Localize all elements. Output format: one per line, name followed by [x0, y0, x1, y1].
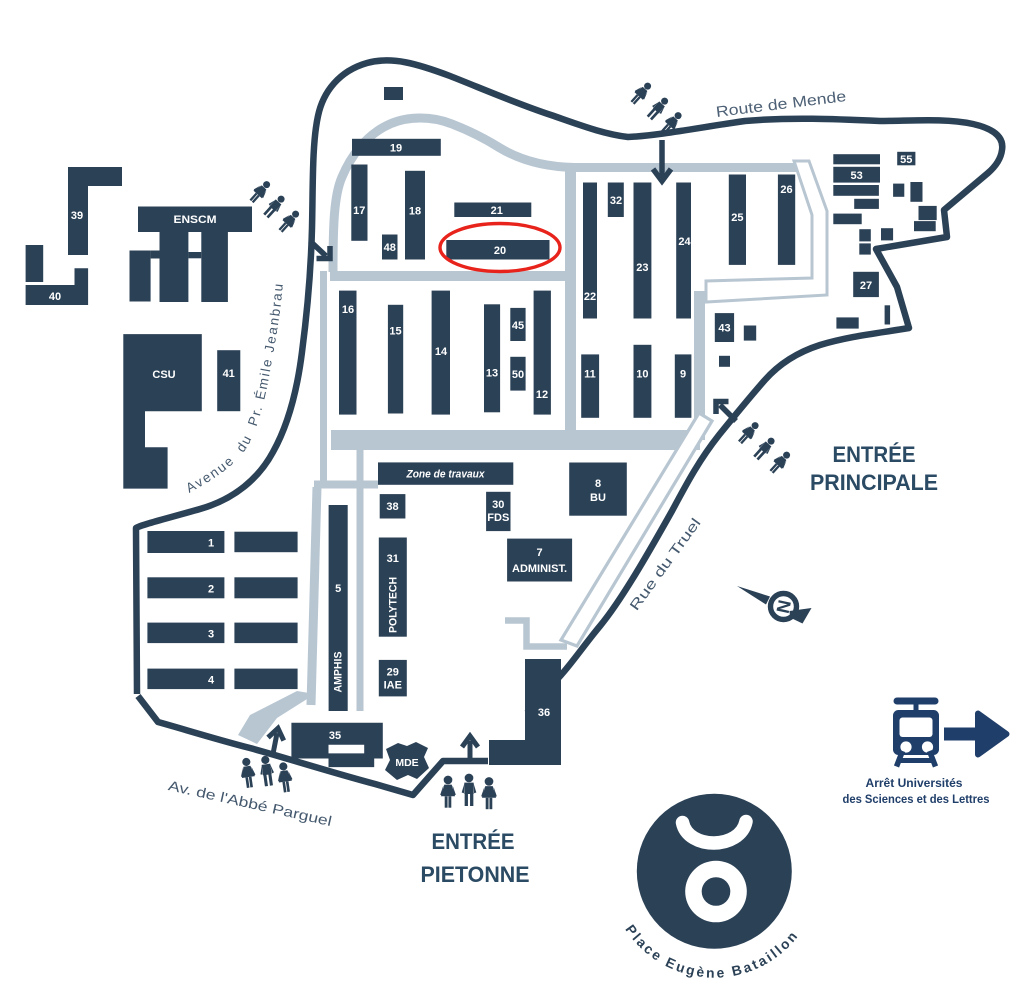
- svg-text:38: 38: [386, 501, 398, 513]
- svg-text:43: 43: [718, 323, 730, 335]
- svg-text:FDS: FDS: [487, 512, 509, 524]
- svg-text:12: 12: [536, 389, 548, 401]
- svg-text:des Sciences et des Lettres: des Sciences et des Lettres: [843, 792, 990, 806]
- svg-text:30: 30: [492, 499, 504, 511]
- svg-text:35: 35: [329, 730, 341, 742]
- svg-text:Zone de travaux: Zone de travaux: [406, 469, 486, 481]
- svg-text:9: 9: [680, 369, 686, 381]
- svg-text:5: 5: [335, 583, 341, 595]
- svg-text:22: 22: [584, 291, 596, 303]
- svg-text:18: 18: [409, 206, 421, 218]
- svg-text:29: 29: [387, 667, 399, 679]
- svg-text:11: 11: [584, 369, 596, 381]
- svg-text:7: 7: [536, 547, 542, 559]
- svg-text:BU: BU: [590, 492, 606, 504]
- svg-text:26: 26: [780, 184, 792, 196]
- svg-text:32: 32: [610, 195, 622, 207]
- svg-text:27: 27: [860, 280, 872, 292]
- svg-text:20: 20: [494, 245, 506, 257]
- svg-text:16: 16: [342, 304, 354, 316]
- svg-text:8: 8: [595, 478, 601, 490]
- svg-text:ENTRÉE: ENTRÉE: [833, 442, 916, 467]
- svg-text:24: 24: [678, 236, 691, 248]
- svg-text:21: 21: [491, 205, 503, 217]
- svg-text:53: 53: [850, 170, 862, 182]
- svg-text:55: 55: [900, 154, 912, 166]
- svg-text:40: 40: [49, 291, 61, 303]
- svg-text:25: 25: [731, 212, 743, 224]
- svg-text:IAE: IAE: [384, 680, 402, 692]
- svg-text:50: 50: [512, 369, 524, 381]
- svg-text:ADMINIST.: ADMINIST.: [512, 563, 567, 575]
- svg-text:4: 4: [208, 675, 215, 687]
- svg-text:19: 19: [390, 143, 402, 155]
- svg-text:31: 31: [387, 553, 399, 565]
- svg-text:36: 36: [538, 707, 550, 719]
- svg-text:1: 1: [208, 538, 214, 550]
- svg-text:PRINCIPALE: PRINCIPALE: [810, 470, 938, 495]
- svg-text:AMPHIS: AMPHIS: [333, 652, 345, 693]
- svg-text:POLYTECH: POLYTECH: [388, 577, 400, 633]
- svg-text:10: 10: [636, 369, 648, 381]
- svg-text:CSU: CSU: [152, 369, 175, 381]
- svg-text:23: 23: [636, 262, 648, 274]
- svg-text:2: 2: [208, 584, 214, 596]
- svg-text:ENSCM: ENSCM: [174, 214, 217, 226]
- svg-text:PIETONNE: PIETONNE: [421, 862, 530, 887]
- svg-text:15: 15: [389, 326, 401, 338]
- svg-text:41: 41: [223, 368, 235, 380]
- svg-text:MDE: MDE: [395, 757, 418, 769]
- svg-text:3: 3: [208, 629, 214, 641]
- svg-text:48: 48: [384, 242, 396, 254]
- svg-text:39: 39: [71, 210, 83, 222]
- svg-text:17: 17: [353, 205, 365, 217]
- svg-text:45: 45: [512, 320, 524, 332]
- svg-text:Arrêt Universités: Arrêt Universités: [866, 776, 963, 790]
- svg-text:14: 14: [435, 346, 448, 358]
- svg-text:ENTRÉE: ENTRÉE: [432, 829, 515, 854]
- svg-text:13: 13: [486, 368, 498, 380]
